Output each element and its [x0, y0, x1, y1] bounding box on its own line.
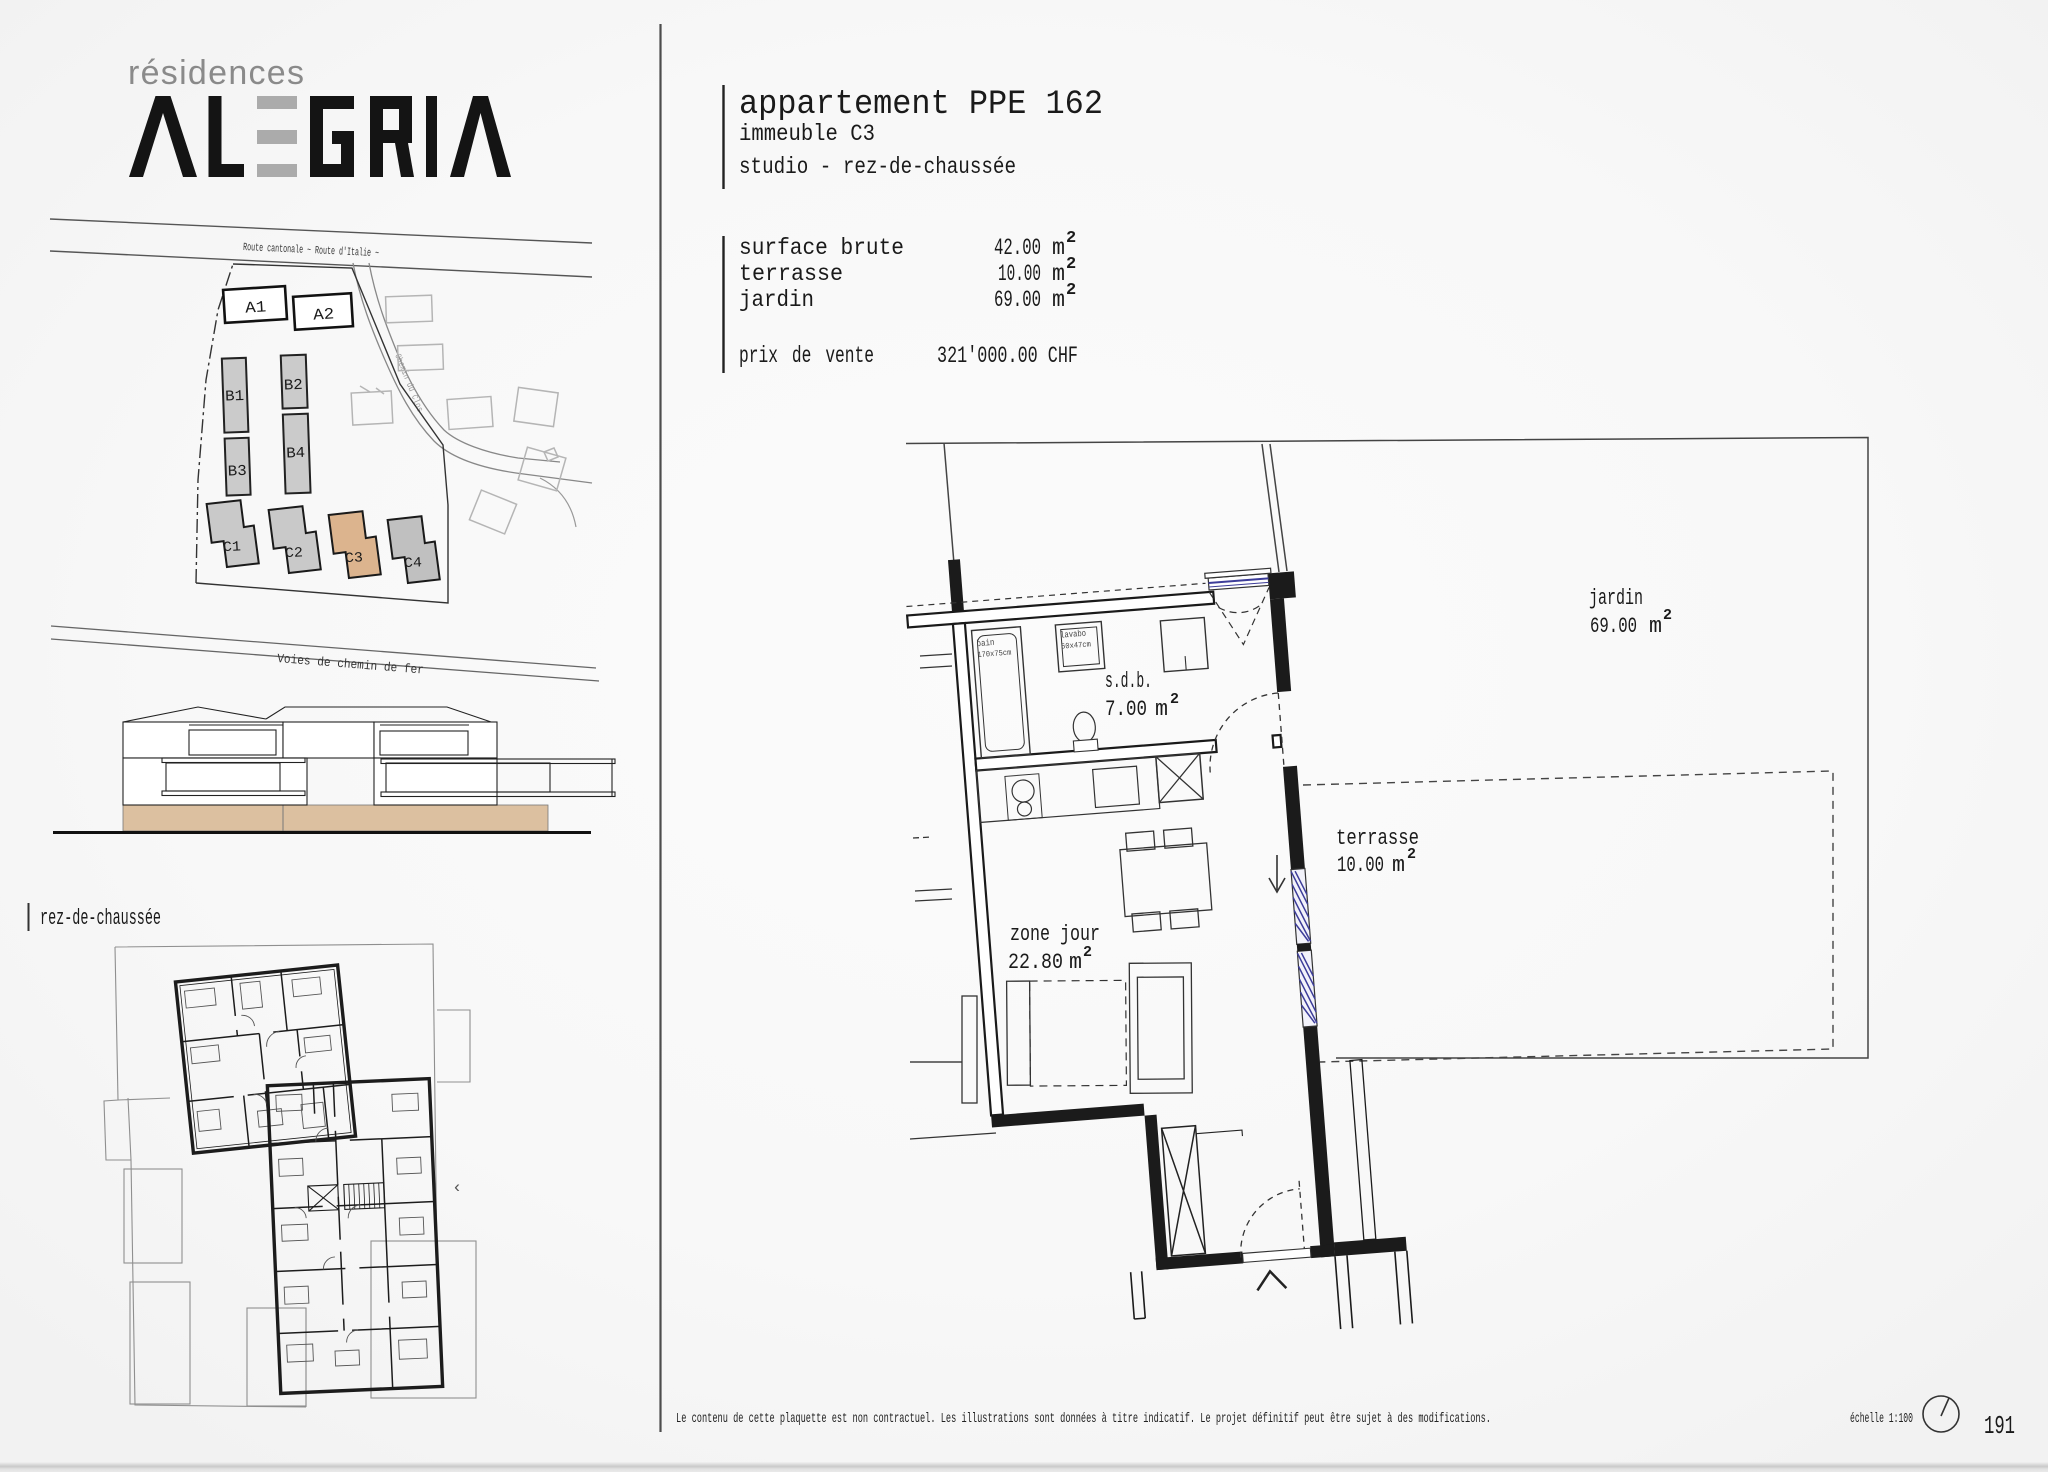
svg-text:B1: B1 — [225, 388, 245, 406]
svg-text:2: 2 — [1170, 691, 1179, 708]
svg-text:10.00: 10.00 — [998, 261, 1041, 287]
svg-text:m: m — [1052, 287, 1065, 313]
svg-text:échelle 1:100: échelle 1:100 — [1850, 1412, 1913, 1427]
svg-text:m: m — [1649, 613, 1662, 639]
svg-text:studio - rez-de-chaussée: studio - rez-de-chaussée — [739, 154, 1016, 180]
svg-text:2: 2 — [1407, 846, 1416, 863]
svg-text:surface brute: surface brute — [739, 235, 904, 261]
svg-text:appartement PPE 162: appartement PPE 162 — [739, 85, 1103, 124]
svg-text:42.00: 42.00 — [994, 235, 1041, 261]
svg-text:Route cantonale ~ Route d'Ital: Route cantonale ~ Route d'Italie ~ — [243, 242, 380, 260]
svg-text:jardin: jardin — [1589, 585, 1643, 611]
svg-text:immeuble C3: immeuble C3 — [739, 121, 875, 147]
svg-text:69.00: 69.00 — [994, 287, 1041, 313]
svg-text:m: m — [1392, 852, 1405, 878]
svg-text:170x75cm: 170x75cm — [977, 649, 1012, 661]
svg-text:rez-de-chaussée: rez-de-chaussée — [40, 906, 161, 931]
svg-text:C4: C4 — [404, 555, 423, 572]
svg-text:résidences: résidences — [128, 54, 304, 92]
svg-text:C1: C1 — [223, 539, 242, 556]
svg-text:A1: A1 — [245, 298, 267, 317]
svg-text:m: m — [1052, 261, 1065, 287]
svg-text:22.80: 22.80 — [1008, 949, 1063, 975]
svg-text:m: m — [1069, 949, 1082, 975]
svg-text:bain: bain — [976, 638, 995, 649]
svg-text:60x47cm: 60x47cm — [1061, 640, 1092, 651]
svg-text:321'000.00 CHF: 321'000.00 CHF — [937, 343, 1078, 369]
svg-text:10.00: 10.00 — [1337, 852, 1384, 878]
svg-text:B2: B2 — [284, 377, 304, 395]
svg-text:Le contenu de cette plaquette: Le contenu de cette plaquette est non co… — [676, 1411, 1491, 1427]
svg-text:2: 2 — [1066, 255, 1076, 274]
svg-text:2: 2 — [1663, 607, 1672, 624]
svg-text:Voies de chemin de fer: Voies de chemin de fer — [277, 652, 425, 677]
svg-text:terrasse: terrasse — [739, 261, 843, 287]
svg-text:69.00: 69.00 — [1590, 613, 1637, 639]
svg-text:m: m — [1155, 696, 1168, 722]
svg-text:2: 2 — [1066, 281, 1076, 300]
svg-text:7.00: 7.00 — [1105, 696, 1147, 722]
svg-text:C2: C2 — [285, 545, 304, 562]
svg-text:2: 2 — [1066, 229, 1076, 248]
svg-text:‹: ‹ — [452, 1179, 462, 1198]
svg-text:2: 2 — [1083, 944, 1092, 961]
svg-text:B4: B4 — [286, 445, 306, 463]
svg-text:s.d.b.: s.d.b. — [1105, 668, 1152, 694]
svg-text:C3: C3 — [345, 550, 364, 567]
svg-text:B3: B3 — [227, 463, 247, 481]
svg-text:191: 191 — [1984, 1411, 2015, 1441]
svg-text:A2: A2 — [313, 305, 335, 324]
svg-text:lavabo: lavabo — [1060, 629, 1087, 641]
svg-text:m: m — [1052, 235, 1065, 261]
svg-text:prix de vente: prix de vente — [739, 343, 874, 369]
svg-text:Chemin du Clos: Chemin du Clos — [392, 352, 424, 413]
svg-text:jardin: jardin — [739, 287, 814, 313]
